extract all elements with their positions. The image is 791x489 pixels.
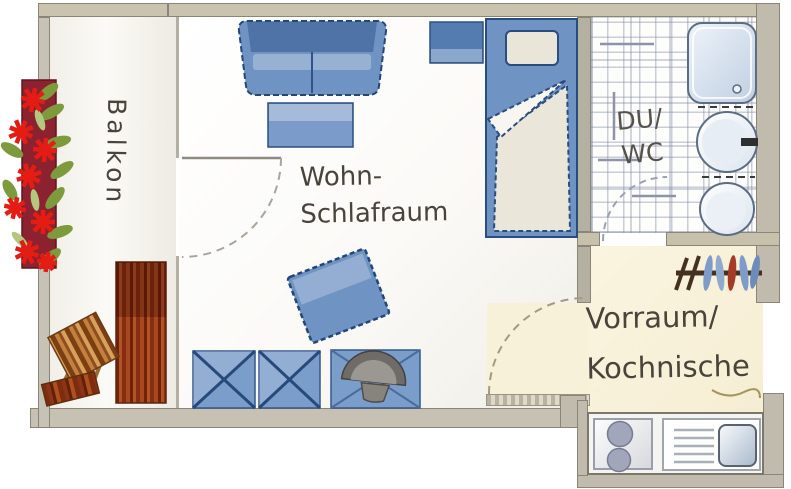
balcony-label: Balkon	[85, 98, 132, 249]
tilted-side-table	[287, 248, 390, 343]
hall-label-line1: Vorraum/	[585, 290, 768, 343]
pillow	[506, 31, 558, 65]
coffee-table	[268, 103, 353, 147]
hall-label-line2: Kochnische	[586, 340, 769, 393]
shower	[688, 23, 756, 103]
folding-table-1	[193, 351, 255, 408]
bathroom-door	[603, 177, 667, 241]
table-with-armchair	[331, 348, 420, 408]
tap	[741, 138, 758, 146]
wall-shelf	[430, 22, 483, 63]
hall-door	[489, 298, 585, 394]
living-room-label: Wohn- Schlafraum	[299, 156, 500, 233]
burner	[608, 422, 633, 447]
living-room-label-line2: Schlafraum	[300, 193, 501, 233]
floor-plan: Balkon Wohn- Schlafraum DU/ WC Vorraum/ …	[0, 0, 791, 489]
bathroom-label-line2: WC	[602, 134, 683, 175]
wooden-chair	[42, 312, 119, 406]
flower-box	[0, 80, 76, 273]
bathroom-label: DU/ WC	[599, 100, 683, 175]
coat-rack	[676, 255, 762, 292]
kitchen-sink	[663, 419, 760, 470]
folding-table-2	[259, 351, 320, 408]
kitchen-counter	[588, 413, 763, 474]
balcony-door	[182, 158, 281, 257]
sun-lounger	[116, 262, 166, 403]
sink-basin	[719, 425, 756, 466]
living-room-label-line1: Wohn-	[299, 156, 500, 196]
sofa	[239, 21, 386, 95]
stove-two-burners	[594, 419, 652, 472]
hall-label: Vorraum/ Kochnische	[585, 290, 769, 393]
toilet	[700, 183, 754, 235]
shower-drain	[733, 85, 741, 93]
washbasin	[697, 112, 758, 172]
burner	[608, 449, 631, 472]
